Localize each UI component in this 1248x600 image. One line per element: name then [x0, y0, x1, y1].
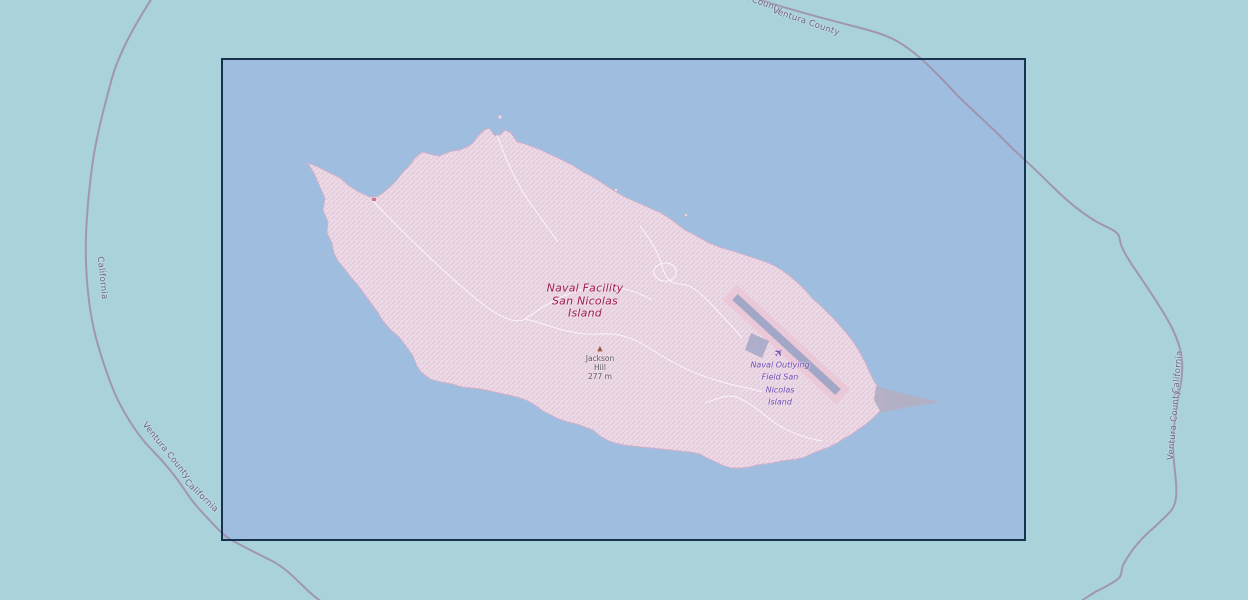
map-canvas[interactable]: Naval Facility San Nicolas Island ▲ Jack…: [0, 0, 1248, 600]
map-graphics: [0, 0, 1248, 600]
building-mark: [372, 198, 376, 201]
